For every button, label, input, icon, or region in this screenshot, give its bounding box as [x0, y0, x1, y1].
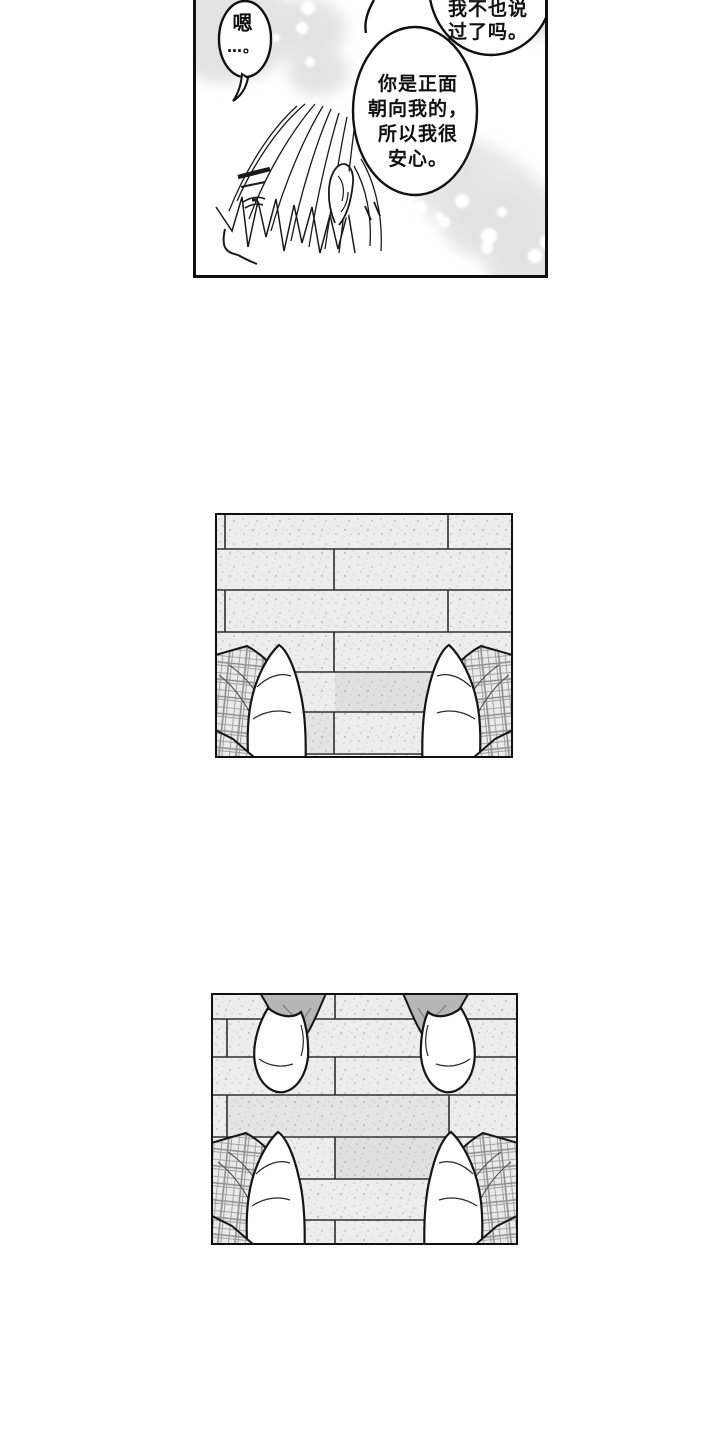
bubble-main-line3: 所以我很 — [356, 122, 480, 147]
own-feet-scene — [217, 515, 511, 756]
own-left-foot — [213, 1132, 305, 1243]
bubble-top-text: 我不也说 过了吗。 — [426, 0, 548, 44]
bubble-main-text: 你是正面 朝向我的， 所以我很 安心。 — [356, 72, 480, 172]
bubble-top-line2: 过了吗。 — [426, 21, 548, 44]
bubble-small-line1: 嗯 — [207, 10, 279, 36]
manga-page: { "panel1": { "bubble_top": { "line1": "… — [0, 0, 720, 1440]
bubble-main-line4: 安心。 — [356, 147, 480, 172]
own-right-foot — [424, 1132, 516, 1243]
bubble-small-line2: …。 — [207, 36, 279, 58]
panel-closeup: 我不也说 过了吗。 你是正面 朝向我的， 所以我很 安心。 嗯 …。 — [193, 0, 548, 278]
bubble-main-line2: 朝向我的， — [356, 97, 480, 122]
bubble-small-text: 嗯 …。 — [207, 10, 279, 58]
bubble-top-line1: 我不也说 — [426, 0, 548, 21]
panel-own-feet — [215, 513, 513, 758]
panel-facing-feet — [211, 993, 518, 1245]
bubble-main-line1: 你是正面 — [356, 72, 480, 97]
bubble-edge-arc — [365, 0, 374, 33]
facing-feet-scene — [213, 995, 516, 1243]
